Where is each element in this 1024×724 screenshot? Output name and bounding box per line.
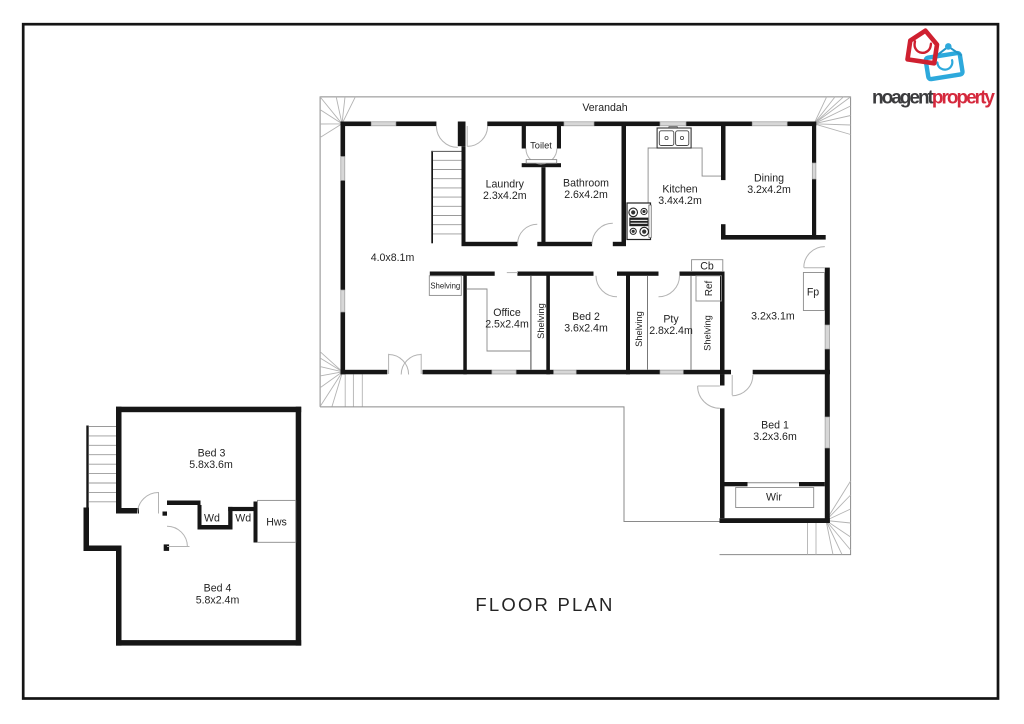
svg-text:4.0x8.1m: 4.0x8.1m bbox=[371, 252, 415, 264]
svg-text:Cb: Cb bbox=[700, 260, 714, 272]
svg-text:5.8x2.4m: 5.8x2.4m bbox=[196, 594, 240, 606]
svg-text:Dining: Dining bbox=[754, 173, 784, 185]
svg-text:Bed 2: Bed 2 bbox=[572, 311, 600, 323]
svg-text:Wd: Wd bbox=[204, 512, 220, 524]
svg-text:Toilet: Toilet bbox=[530, 141, 552, 151]
svg-text:2.5x2.4m: 2.5x2.4m bbox=[485, 318, 529, 330]
svg-text:3.6x2.4m: 3.6x2.4m bbox=[564, 322, 608, 334]
svg-text:Kitchen: Kitchen bbox=[662, 184, 697, 196]
svg-text:3.4x4.2m: 3.4x4.2m bbox=[658, 195, 702, 207]
svg-text:Bed 3: Bed 3 bbox=[198, 448, 226, 460]
svg-text:3.2x4.2m: 3.2x4.2m bbox=[747, 184, 791, 196]
svg-text:3.2x3.6m: 3.2x3.6m bbox=[753, 431, 797, 443]
svg-text:Bathroom: Bathroom bbox=[563, 178, 609, 190]
svg-text:Hws: Hws bbox=[266, 516, 287, 528]
svg-text:FLOOR PLAN: FLOOR PLAN bbox=[475, 594, 614, 615]
svg-text:Ref: Ref bbox=[704, 280, 715, 296]
svg-text:Shelving: Shelving bbox=[634, 311, 644, 347]
svg-text:noagentproperty: noagentproperty bbox=[872, 88, 995, 109]
svg-text:Laundry: Laundry bbox=[486, 178, 525, 190]
svg-text:2.8x2.4m: 2.8x2.4m bbox=[649, 325, 693, 337]
svg-text:Office: Office bbox=[493, 307, 521, 319]
svg-text:Fp: Fp bbox=[807, 286, 819, 298]
svg-text:Bed 1: Bed 1 bbox=[761, 420, 789, 432]
svg-text:Shelving: Shelving bbox=[536, 303, 546, 339]
svg-text:3.2x3.1m: 3.2x3.1m bbox=[751, 310, 795, 322]
svg-text:Verandah: Verandah bbox=[582, 102, 627, 114]
svg-text:2.6x4.2m: 2.6x4.2m bbox=[564, 189, 608, 201]
svg-text:Shelving: Shelving bbox=[430, 281, 460, 290]
svg-text:Wir: Wir bbox=[766, 491, 782, 503]
svg-text:Wd: Wd bbox=[235, 512, 251, 524]
svg-text:Shelving: Shelving bbox=[702, 315, 712, 351]
svg-text:5.8x3.6m: 5.8x3.6m bbox=[189, 459, 233, 471]
svg-text:2.3x4.2m: 2.3x4.2m bbox=[483, 190, 527, 202]
svg-text:Pty: Pty bbox=[663, 313, 679, 325]
svg-text:Bed 4: Bed 4 bbox=[204, 583, 232, 595]
